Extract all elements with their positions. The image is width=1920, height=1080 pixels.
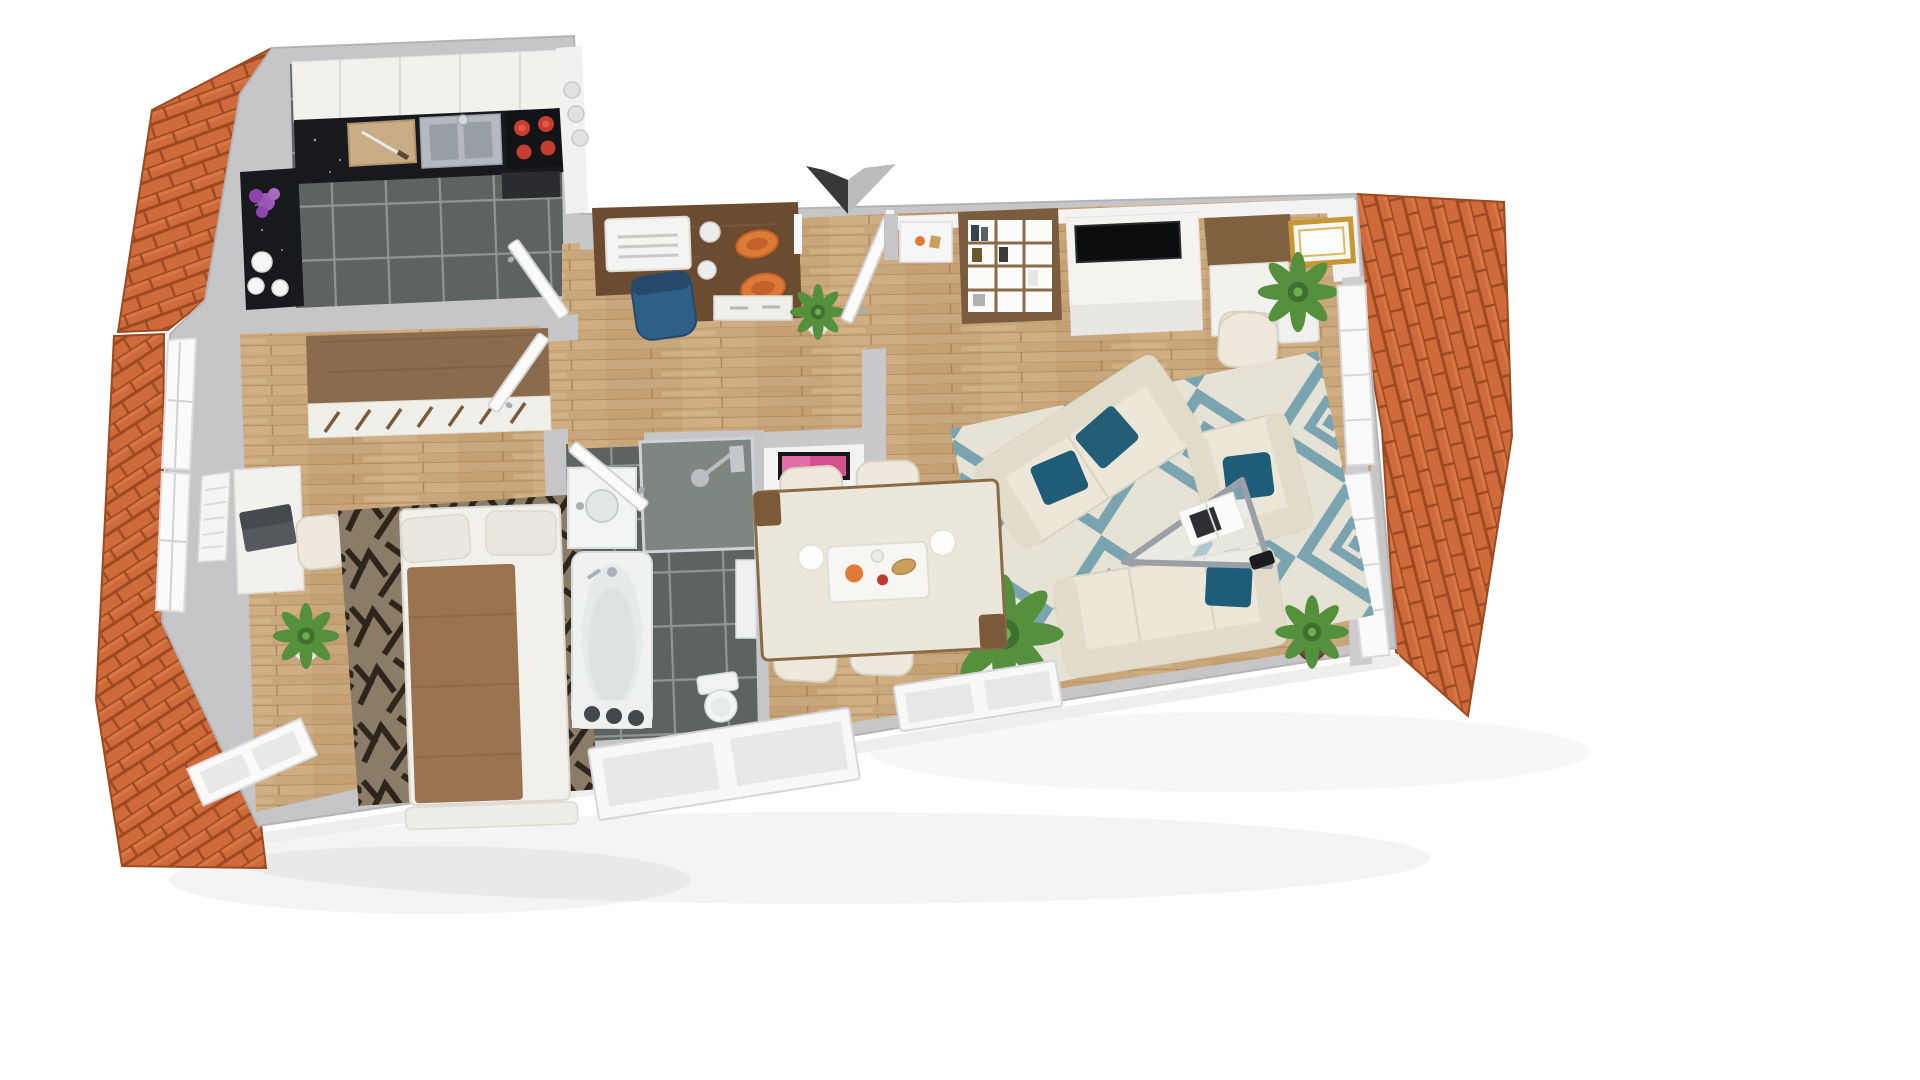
tv-sideboard bbox=[1066, 212, 1203, 336]
faucet bbox=[458, 115, 468, 125]
bedroom-window-upper bbox=[162, 338, 196, 470]
small-plant bbox=[1275, 595, 1349, 669]
bedroom-radiator bbox=[198, 472, 230, 562]
bedroom-plant bbox=[273, 603, 340, 670]
shelving-unit bbox=[958, 208, 1062, 324]
printer bbox=[605, 217, 691, 272]
hall-chair bbox=[630, 270, 698, 342]
round-basin bbox=[586, 490, 618, 522]
dining-table bbox=[754, 480, 1006, 661]
floor-plan-svg bbox=[0, 0, 1920, 1080]
entry-jamb bbox=[794, 214, 802, 254]
cutting-board bbox=[348, 120, 416, 166]
shower bbox=[640, 438, 756, 552]
dining-area bbox=[754, 460, 1006, 683]
bed-pillow bbox=[486, 511, 556, 555]
bedroom-desk bbox=[234, 466, 304, 594]
corner-plant bbox=[1258, 252, 1339, 333]
drawer-front bbox=[714, 296, 792, 320]
plate bbox=[929, 529, 956, 556]
cushion bbox=[1205, 565, 1253, 607]
vase bbox=[698, 261, 716, 279]
floor-plan-stage bbox=[0, 0, 1920, 1080]
bath-cabinet bbox=[736, 560, 756, 638]
tub-faucet bbox=[607, 567, 617, 577]
hall-plant bbox=[790, 284, 846, 340]
flat-tv bbox=[1075, 222, 1180, 263]
tub-ledge-drains bbox=[572, 700, 652, 728]
bedroom-window-lower bbox=[156, 472, 190, 612]
entry-wall-stub bbox=[884, 214, 898, 260]
vase bbox=[700, 222, 720, 242]
basin-faucet bbox=[576, 502, 584, 510]
bed bbox=[395, 504, 578, 830]
kitchen-door-threshold bbox=[562, 243, 580, 315]
wall-niche-decor bbox=[900, 222, 952, 262]
kitchen-sink bbox=[420, 114, 502, 168]
kitchen-stove bbox=[506, 108, 562, 170]
bed-pillow bbox=[400, 514, 472, 564]
serving-tray bbox=[827, 542, 930, 603]
oven bbox=[502, 171, 561, 199]
plate bbox=[798, 544, 825, 571]
